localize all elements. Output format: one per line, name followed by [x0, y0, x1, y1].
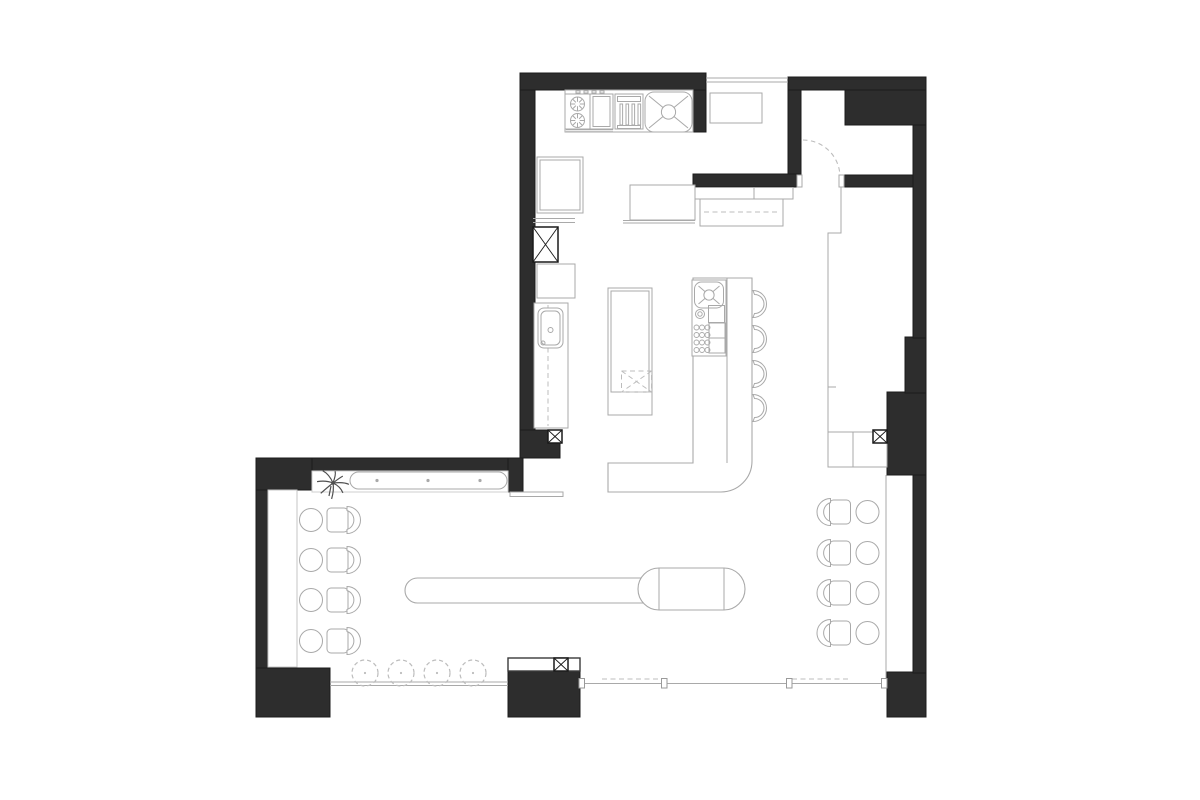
bench-button: [478, 479, 481, 482]
bar-stool: [753, 395, 767, 422]
bench-button: [375, 479, 378, 482]
wall-top-right-band: [788, 77, 926, 90]
bar-stool: [753, 361, 767, 388]
window-jamb: [882, 679, 888, 689]
door-jamb: [839, 175, 844, 187]
entry-boundary-line: [828, 187, 841, 467]
door-jamb: [797, 175, 802, 187]
wall-corner-bottom-left: [256, 668, 330, 717]
dining-chair: [817, 499, 851, 526]
wall-entry-bottom-left: [693, 174, 801, 187]
column-x-marker: [548, 430, 562, 443]
window-jamb: [579, 679, 585, 689]
wall-right-upper: [913, 125, 926, 338]
wall-top-kitchen: [520, 73, 706, 90]
window-ledge-left: [268, 490, 297, 667]
column-x-marker: [873, 430, 887, 443]
dining-table-round: [300, 589, 323, 612]
wall-right-step: [905, 337, 926, 393]
dining-table-round: [300, 509, 323, 532]
wall-bench-left: [256, 458, 312, 490]
dining-table-round: [300, 630, 323, 653]
dining-chair: [817, 540, 851, 567]
window-jamb: [787, 679, 793, 689]
dining-table-round: [300, 549, 323, 572]
communal-table: [405, 578, 645, 603]
column-x-marker: [533, 227, 558, 262]
kitchen-cabinet: [537, 264, 575, 298]
range-burner: [571, 114, 585, 128]
column-x-marker: [554, 658, 568, 671]
pier-counter: [508, 658, 580, 671]
wall-entry-block: [845, 90, 926, 125]
bench-button: [426, 479, 429, 482]
bar-stool: [753, 291, 767, 318]
dining-table-round: [856, 501, 879, 524]
range-knob: [600, 91, 604, 93]
entry-counter: [693, 188, 793, 200]
kitchen-sink: [645, 92, 692, 132]
range-knob: [576, 91, 580, 93]
dining-chair: [327, 507, 361, 534]
dining-table-round: [856, 542, 879, 565]
dining-chair: [327, 628, 361, 655]
wall-dining-left: [256, 490, 268, 668]
wall-entry-left: [788, 90, 801, 175]
wall-pier-bottom: [508, 671, 580, 717]
dining-chair: [327, 587, 361, 614]
dining-table-round: [856, 622, 879, 645]
range-knob: [584, 91, 588, 93]
party-wall-strip: [510, 492, 563, 497]
entry-side-table: [710, 93, 762, 123]
floor-plan-svg: [0, 0, 1200, 800]
refrigerator: [537, 157, 583, 213]
dining-table-round: [856, 582, 879, 605]
wall-right-mass: [887, 392, 926, 475]
wall-corner-bottom-right: [887, 672, 926, 717]
dining-chair: [817, 620, 851, 647]
dining-chair: [817, 580, 851, 607]
range-burner: [571, 97, 585, 111]
bar-sink: [695, 282, 724, 308]
range-knob: [592, 91, 596, 93]
prep-counter: [630, 185, 695, 220]
bar-stool: [753, 326, 767, 353]
oval-table: [638, 568, 745, 610]
wall-right-lower: [913, 475, 926, 673]
wall-pier-right-of-sink: [692, 90, 706, 132]
wall-bench-right: [508, 458, 523, 492]
kitchen-island: [608, 288, 652, 415]
window-jamb: [662, 679, 668, 689]
wall-entry-bottom-right: [843, 175, 913, 187]
door-swing-arc: [803, 140, 840, 177]
dining-chair: [327, 547, 361, 574]
floor-plan: [0, 0, 1200, 800]
